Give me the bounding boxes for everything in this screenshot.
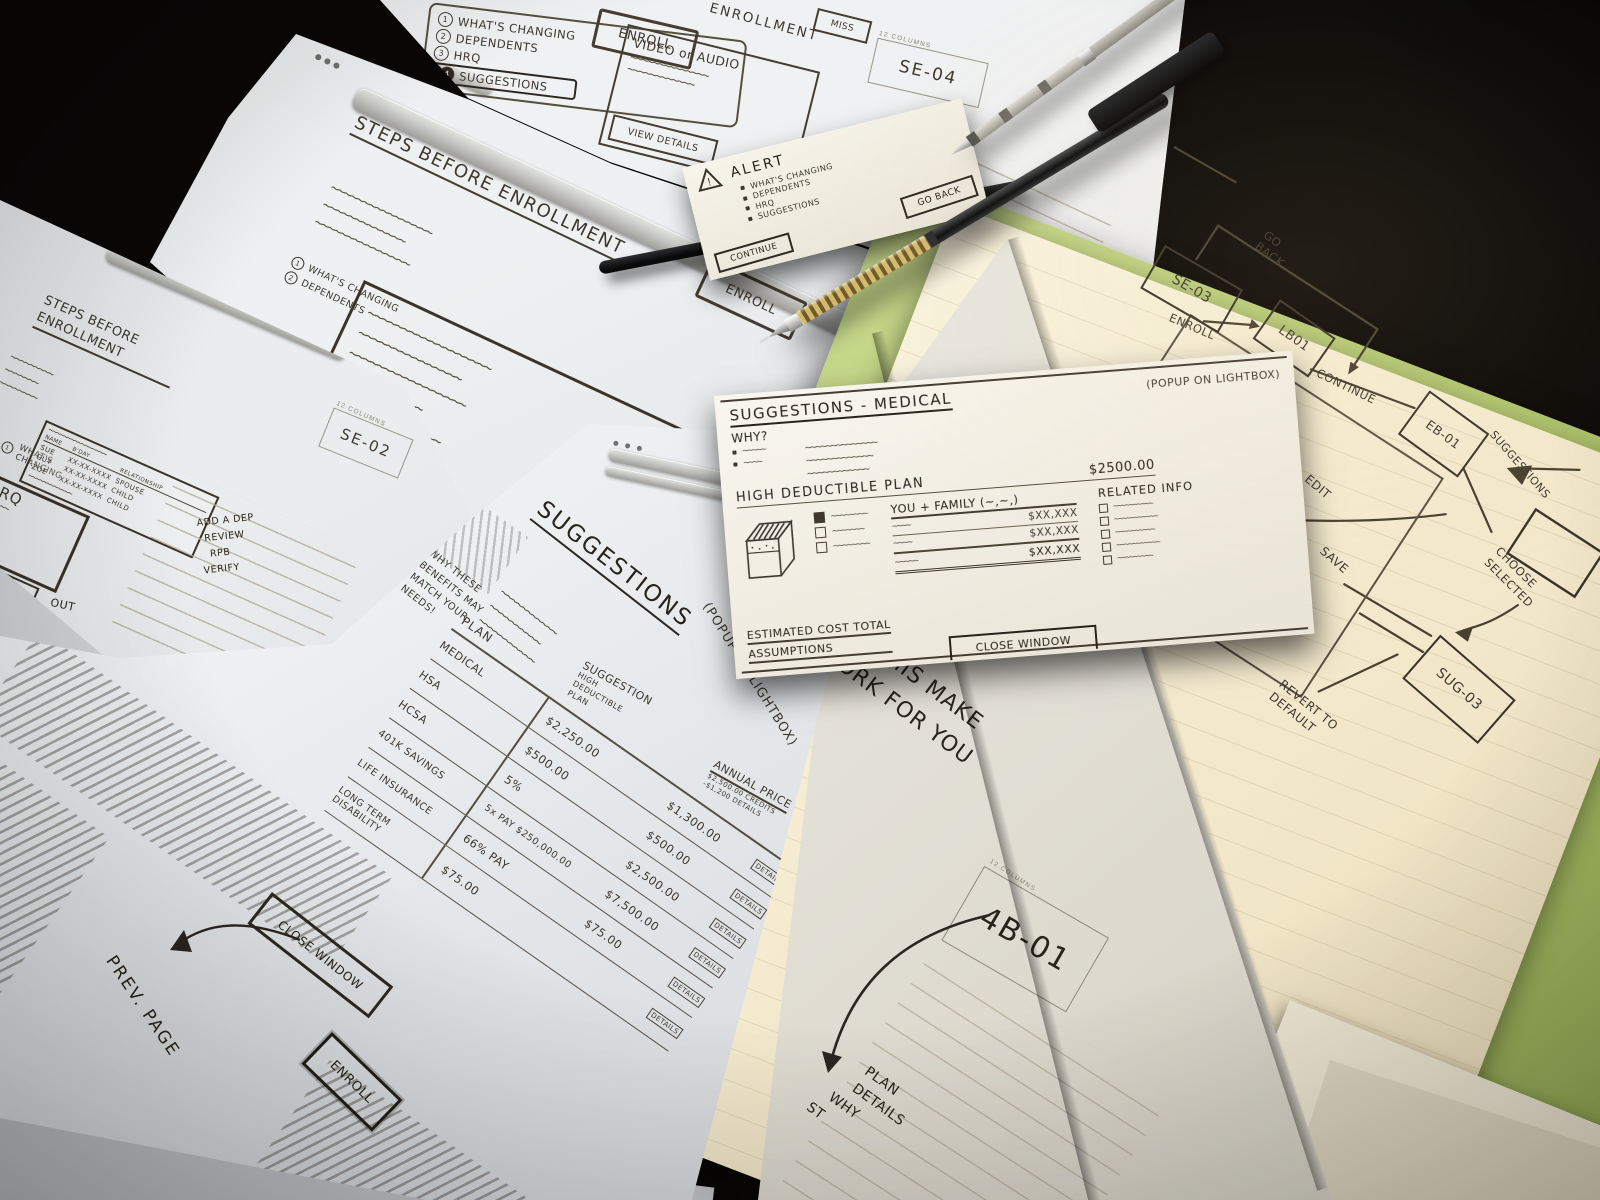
window-dot-icon	[117, 233, 124, 240]
amount-total: $XX,XXX	[1028, 542, 1081, 559]
details-link-sketch: DETAILS	[668, 976, 706, 1008]
details-link-sketch: DETAILS	[646, 1008, 684, 1040]
window-dot-icon	[101, 226, 108, 233]
browser-dots	[310, 46, 345, 75]
placeholder-squiggle: ~~~~~	[742, 445, 765, 457]
step-label: HRQ	[453, 48, 482, 65]
checkbox-icon	[815, 527, 827, 539]
checkbox-icon	[813, 512, 825, 524]
margin-notes: ADD A DEP REVIEW RPB VERIFY	[196, 510, 260, 580]
bullet-icon	[748, 216, 753, 221]
placeholder-squiggle: ~~~~~~~~	[830, 509, 867, 522]
family-cost-block: YOU + FAMILY (~,~,) ~~~~ $XX,XXX ~~~~ $X…	[890, 488, 1081, 574]
window-dot-icon	[323, 57, 331, 65]
checkbox-icon	[1100, 516, 1110, 526]
window-dot-icon	[109, 230, 116, 237]
bullet-icon	[740, 186, 745, 191]
placeholder-squiggle: ~~~~	[743, 457, 762, 468]
placeholder-squiggle: ~~~~	[892, 521, 911, 532]
intro-squiggles: ~~~~~~~~~ ~~~~~~~ ~~~~~~~~	[0, 348, 56, 408]
window-dot-icon	[332, 62, 340, 70]
svg-text:!: !	[706, 176, 712, 188]
window-dot-icon	[636, 445, 642, 451]
amount-value: $XX,XXX	[1029, 524, 1079, 540]
pencil-lead	[759, 336, 769, 344]
step-number-icon: 2	[435, 28, 452, 45]
step-number-icon: 3	[433, 45, 450, 62]
intro-squiggles: ~~~~~~~~~~~~~~~~ ~~~~~~~~~~~~~ ~~~~~~~~~…	[310, 176, 437, 279]
suggestions-medical-card: SUGGESTIONS - MEDICAL (POPUP ON LIGHTBOX…	[714, 350, 1314, 679]
step-number-icon: 2	[282, 269, 299, 286]
placeholder-squiggle: ~~~~~~~~~~~	[1114, 513, 1158, 525]
related-info-block: RELATED INFO ~~~~~~~~~~ ~~~~~~~~~~~ ~~~~…	[1097, 479, 1199, 569]
step-number-icon: 4	[438, 66, 455, 83]
miss-button-sketch: MISS	[812, 8, 872, 44]
step-number-icon: 1	[289, 255, 306, 272]
placeholder-squiggle: ~~~~~~~~~~	[1115, 526, 1155, 538]
placeholder-squiggle: ~~~~~~~~	[833, 539, 870, 552]
window-dot-icon	[314, 53, 322, 61]
step-number-icon: 1	[437, 11, 454, 28]
checkbox-icon	[1103, 555, 1113, 565]
checkbox-icon	[816, 542, 828, 554]
checkbox-list: ~~~~~~~~ ~~~~~~~ ~~~~~~~~	[813, 504, 870, 557]
bullet-icon	[732, 450, 736, 454]
checkbox-icon	[1101, 529, 1111, 539]
details-link-sketch: DETAILS	[730, 888, 768, 920]
view-details-button-sketch: VIEW DETAILS	[607, 114, 718, 165]
details-link-sketch: DETAILS	[709, 917, 747, 949]
placeholder-squiggle: ~~~~~~~~~~	[1113, 500, 1153, 512]
cube-sketch-icon	[737, 510, 804, 587]
browser-dots	[97, 218, 129, 245]
prev-page-arrow	[150, 880, 310, 1020]
checkbox-icon	[1102, 542, 1112, 552]
window-dot-icon	[613, 440, 619, 446]
step-number-icon: 1	[0, 440, 15, 456]
out-note: OUT	[49, 596, 76, 614]
placeholder-squiggle: ~~~~~~~~~	[1117, 552, 1153, 564]
amount-value: $XX,XXX	[1028, 507, 1078, 523]
popup-lightbox-note: (POPUP ON LIGHTBOX)	[1146, 368, 1281, 391]
placeholder-squiggle: ~~~~~~~	[832, 524, 864, 536]
bullet-icon	[743, 196, 748, 201]
desk-photo-scene: 1 WHAT'S CHANGING 2 DEPENDENTS 3 HRQ 4 S…	[0, 0, 1600, 1200]
warning-triangle-icon: !	[693, 165, 724, 193]
plan-price: $2500.00	[1088, 458, 1155, 478]
page-id-block: 12 COLUMNS SE-02	[318, 400, 416, 480]
bullet-icon	[733, 462, 737, 466]
page-title: STEPS BEFORE ENROLLMENT	[32, 292, 185, 389]
placeholder-squiggle: ~~~~	[893, 538, 912, 549]
placeholder-squiggle: ~~~~~	[894, 556, 917, 568]
checkbox-icon	[1099, 503, 1109, 513]
window-dot-icon	[625, 443, 631, 449]
suggestions-table-sketch: PLAN SUGGESTION HIGH DEDUCTIBLE PLAN ANN…	[324, 628, 796, 1052]
estimate-block: ESTIMATED COST TOTAL ASSUMPTIONS	[746, 618, 892, 664]
page-id-block: 12 COLUMNS SE-04	[867, 30, 990, 109]
popup-title: SUGGESTIONS	[530, 496, 697, 636]
placeholder-squiggle: ~~~~~~~~~~~	[1116, 539, 1160, 551]
table-rows: MEDICAL $2,250.00 $1,300.00 DETAILS HSA …	[324, 628, 796, 1052]
details-link-sketch: DETAILS	[688, 947, 726, 979]
bullet-icon	[745, 206, 750, 211]
